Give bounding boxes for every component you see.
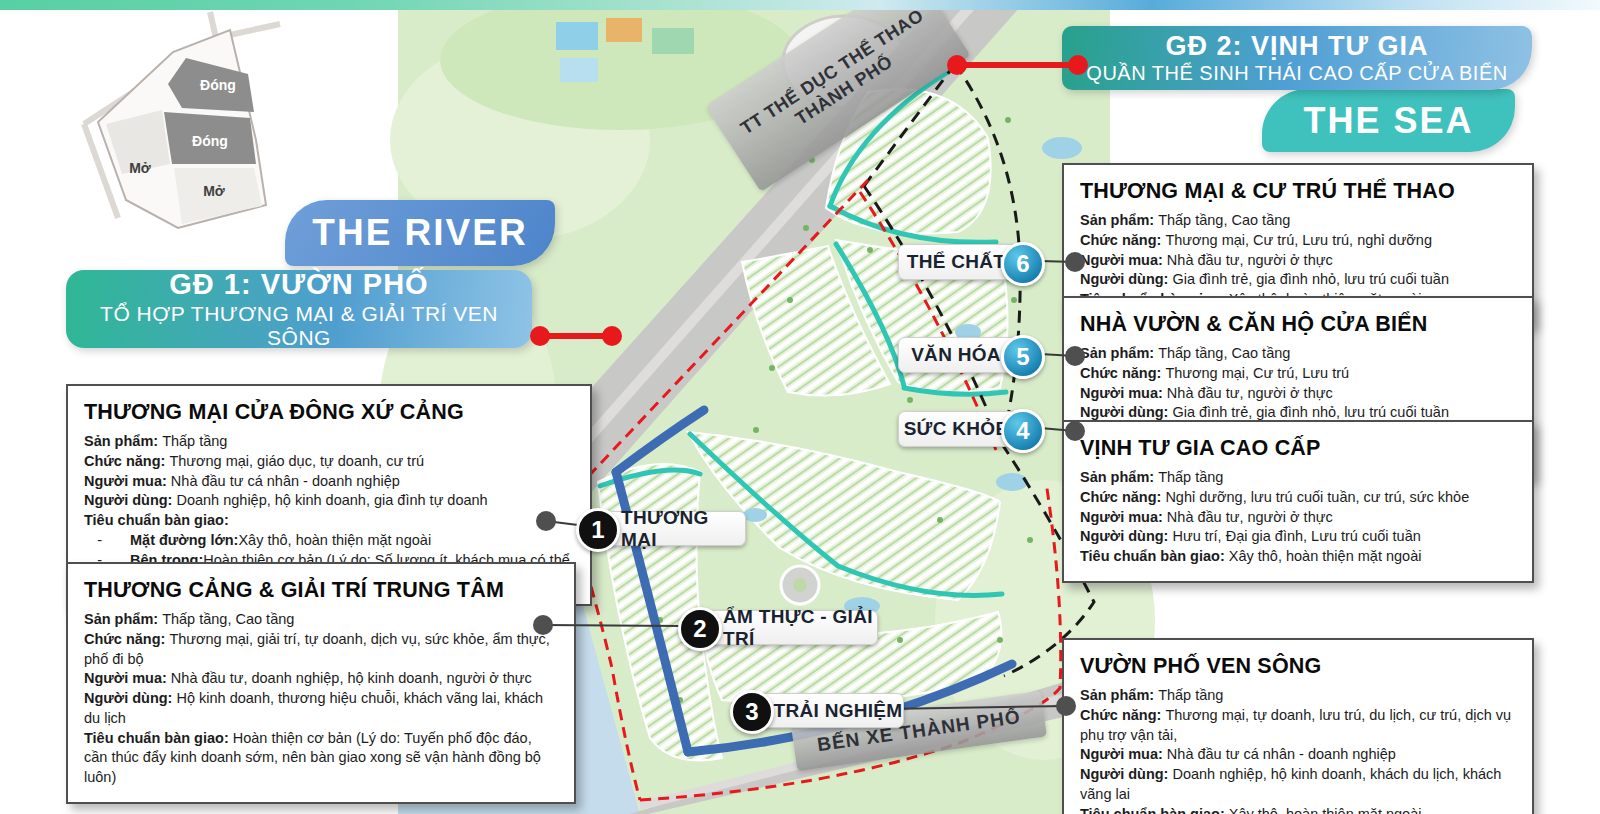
- info-line: Người dùng:Doanh nghiệp, hộ kinh doanh, …: [1080, 765, 1516, 804]
- zone-pill-am-thuc-giai-tri: ẨM THỰC - GIẢI TRÍ: [708, 610, 878, 645]
- sport-court: [560, 58, 598, 82]
- zone-number-2: 2: [678, 607, 722, 651]
- info-box-vuon-pho-ven-song: VƯỜN PHỐ VEN SÔNG Sản phẩm:Thấp tầng Chứ…: [1062, 638, 1534, 814]
- info-line: Người mua:Nhà đầu tư, người ở thực: [1080, 384, 1516, 404]
- info-line: Sản phẩm:Thấp tầng, Cao tầng: [1080, 344, 1516, 364]
- info-line: Sản phẩm:Thấp tầng, Cao tầng: [1080, 211, 1516, 231]
- info-line: Người mua:Nhà đầu tư, doanh nghiệp, hộ k…: [84, 669, 558, 689]
- info-line: Sản phẩm:Thấp tầng: [1080, 468, 1516, 488]
- phase2-subtitle: QUẦN THỂ SINH THÁI CAO CẤP CỬA BIỂN: [1086, 62, 1507, 85]
- zone-number-label: 5: [1016, 343, 1029, 371]
- zone-pill-label: THỂ CHẤT: [907, 251, 1005, 273]
- info-line: Người dùng:Hộ kinh doanh, thương hiệu ch…: [84, 689, 558, 728]
- info-line: Tiêu chuẩn bàn giao:: [84, 511, 574, 531]
- info-line: Người dùng:Hưu trí, Đại gia đình, Lưu tr…: [1080, 527, 1516, 547]
- minimap-open-label: Mở: [129, 160, 151, 176]
- info-line: Chức năng:Nghỉ dưỡng, lưu trú cuối tuần,…: [1080, 488, 1516, 508]
- info-line: Sản phẩm:Thấp tầng: [84, 432, 574, 452]
- info-line: Người mua:Nhà đầu tư, người ở thực: [1080, 251, 1516, 271]
- the-sea-banner: THE SEA: [1262, 89, 1515, 152]
- info-line: Chức năng:Thương mại, Cư trú, Lưu trú, n…: [1080, 231, 1516, 251]
- phase2-title: GĐ 2: VỊNH TƯ GIA: [1166, 31, 1429, 62]
- zone-pill-trai-nghiem: TRẢI NGHIỆM: [760, 693, 904, 728]
- zone-number-1: 1: [576, 508, 620, 552]
- info-line: Chức năng:Thương mại, tự doanh, lưu trú,…: [1080, 706, 1516, 745]
- info-box-title: NHÀ VƯỜN & CĂN HỘ CỬA BIỂN: [1080, 310, 1516, 339]
- zone-pill-label: ẨM THỰC - GIẢI TRÍ: [723, 606, 877, 650]
- info-line: Người mua:Nhà đầu tư cá nhân - doanh ngh…: [1080, 745, 1516, 765]
- zone-number-4: 4: [1001, 409, 1045, 453]
- info-subline: -Mặt đường lớn:Xây thô, hoàn thiện mặt n…: [84, 531, 574, 551]
- the-river-label: THE RIVER: [312, 212, 527, 254]
- info-box-vinh-tu-gia: VỊNH TƯ GIA CAO CẤP Sản phẩm:Thấp tầng C…: [1062, 420, 1534, 583]
- minimap-open-label: Mở: [203, 183, 225, 199]
- info-line: Sản phẩm:Thấp tầng: [1080, 686, 1516, 706]
- info-line: Sản phẩm:Thấp tầng, Cao tầng: [84, 610, 558, 630]
- zone-number-label: 3: [745, 698, 758, 726]
- roundabout-center: [793, 578, 807, 592]
- zone-pill-thuong-mai: THƯƠNG MẠI: [606, 511, 746, 546]
- phase1-banner: GĐ 1: VƯỜN PHỐ TỔ HỢP THƯƠNG MẠI & GIẢI …: [66, 270, 532, 348]
- info-line: Người mua:Nhà đầu tư, người ở thực: [1080, 508, 1516, 528]
- info-box-title: THƯƠNG MẠI CỬA ĐÔNG XỨ CẢNG: [84, 398, 574, 427]
- minimap-closed-label: Đóng: [200, 77, 236, 93]
- info-box-thuong-cang-giai-tri: THƯƠNG CẢNG & GIẢI TRÍ TRUNG TÂM Sản phẩ…: [66, 562, 576, 804]
- sport-court: [652, 28, 694, 54]
- top-gradient-strip: [0, 0, 1600, 10]
- info-box-title: THƯƠNG MẠI & CƯ TRÚ THỂ THAO: [1080, 177, 1516, 206]
- info-line: Chức năng:Thương mại, Cư trú, Lưu trú: [1080, 364, 1516, 384]
- info-line: Tiêu chuẩn bàn giao:Hoàn thiện cơ bản (L…: [84, 729, 558, 788]
- info-line: Chức năng:Thương mại, giải trí, tự doanh…: [84, 630, 558, 669]
- info-line: Tiêu chuẩn bàn giao:Xây thô, hoàn thiện …: [1080, 805, 1516, 814]
- info-box-title: VƯỜN PHỐ VEN SÔNG: [1080, 652, 1516, 681]
- info-box-title: VỊNH TƯ GIA CAO CẤP: [1080, 434, 1516, 463]
- zone-number-label: 6: [1016, 250, 1029, 278]
- zone-number-label: 2: [693, 615, 706, 643]
- phase2-banner: GĐ 2: VỊNH TƯ GIA QUẦN THỂ SINH THÁI CAO…: [1062, 26, 1532, 90]
- phase1-title: GĐ 1: VƯỜN PHỐ: [169, 268, 428, 301]
- zone-number-6: 6: [1001, 242, 1045, 286]
- zone-number-label: 1: [591, 516, 604, 544]
- zone-number-5: 5: [1001, 335, 1045, 379]
- zone-pill-label: THƯƠNG MẠI: [621, 507, 745, 551]
- phase1-subtitle: TỔ HỢP THƯƠNG MẠI & GIẢI TRÍ VEN SÔNG: [66, 302, 532, 350]
- the-sea-label: THE SEA: [1303, 100, 1473, 142]
- zone-pill-label: TRẢI NGHIỆM: [774, 700, 903, 722]
- info-line: Người mua:Nhà đầu tư cá nhân - doanh ngh…: [84, 472, 574, 492]
- info-line: Người dùng:Gia đình trẻ, gia đình nhỏ, l…: [1080, 270, 1516, 290]
- the-river-banner: THE RIVER: [285, 200, 555, 266]
- zone-pill-label: SỨC KHỎE: [904, 418, 1009, 440]
- zone-pill-label: VĂN HÓA: [911, 344, 1001, 366]
- zone-number-3: 3: [730, 690, 774, 734]
- masterplan-infographic: Đóng Đóng Mở Mở TT THỂ DỤC THỂ THAO THÀN…: [0, 0, 1600, 814]
- zone-number-label: 4: [1016, 417, 1029, 445]
- info-line: Chức năng:Thương mại, giáo dục, tự doanh…: [84, 452, 574, 472]
- info-box-title: THƯƠNG CẢNG & GIẢI TRÍ TRUNG TÂM: [84, 576, 558, 605]
- sport-court: [556, 22, 598, 50]
- info-line: Tiêu chuẩn bàn giao:Xây thô, hoàn thiện …: [1080, 547, 1516, 567]
- sport-court: [606, 18, 642, 42]
- info-line: Người dùng:Doanh nghiệp, hộ kinh doanh, …: [84, 491, 574, 511]
- minimap-closed-label: Đóng: [192, 133, 228, 149]
